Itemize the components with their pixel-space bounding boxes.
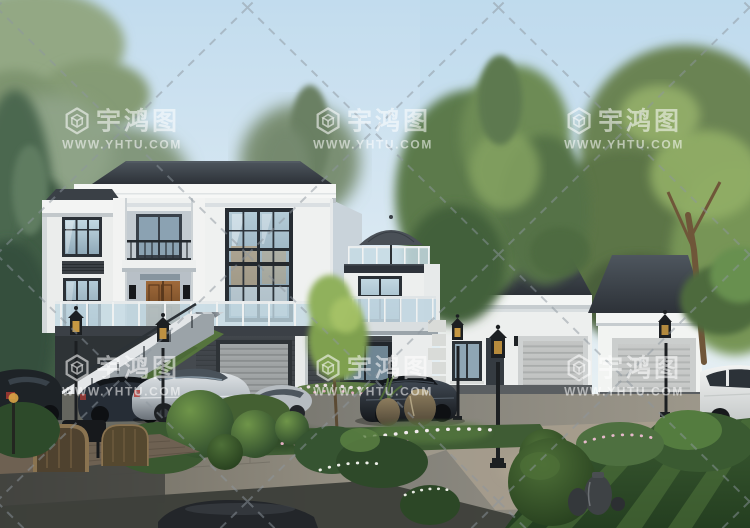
villa-rendering: 宇鸿图 WWW.YHTU.COM 宇鸿图 WWW.YHTU.COM 宇鸿图 WW… (0, 0, 750, 528)
scene-canvas (0, 0, 750, 528)
watermark-lattice (0, 0, 750, 528)
